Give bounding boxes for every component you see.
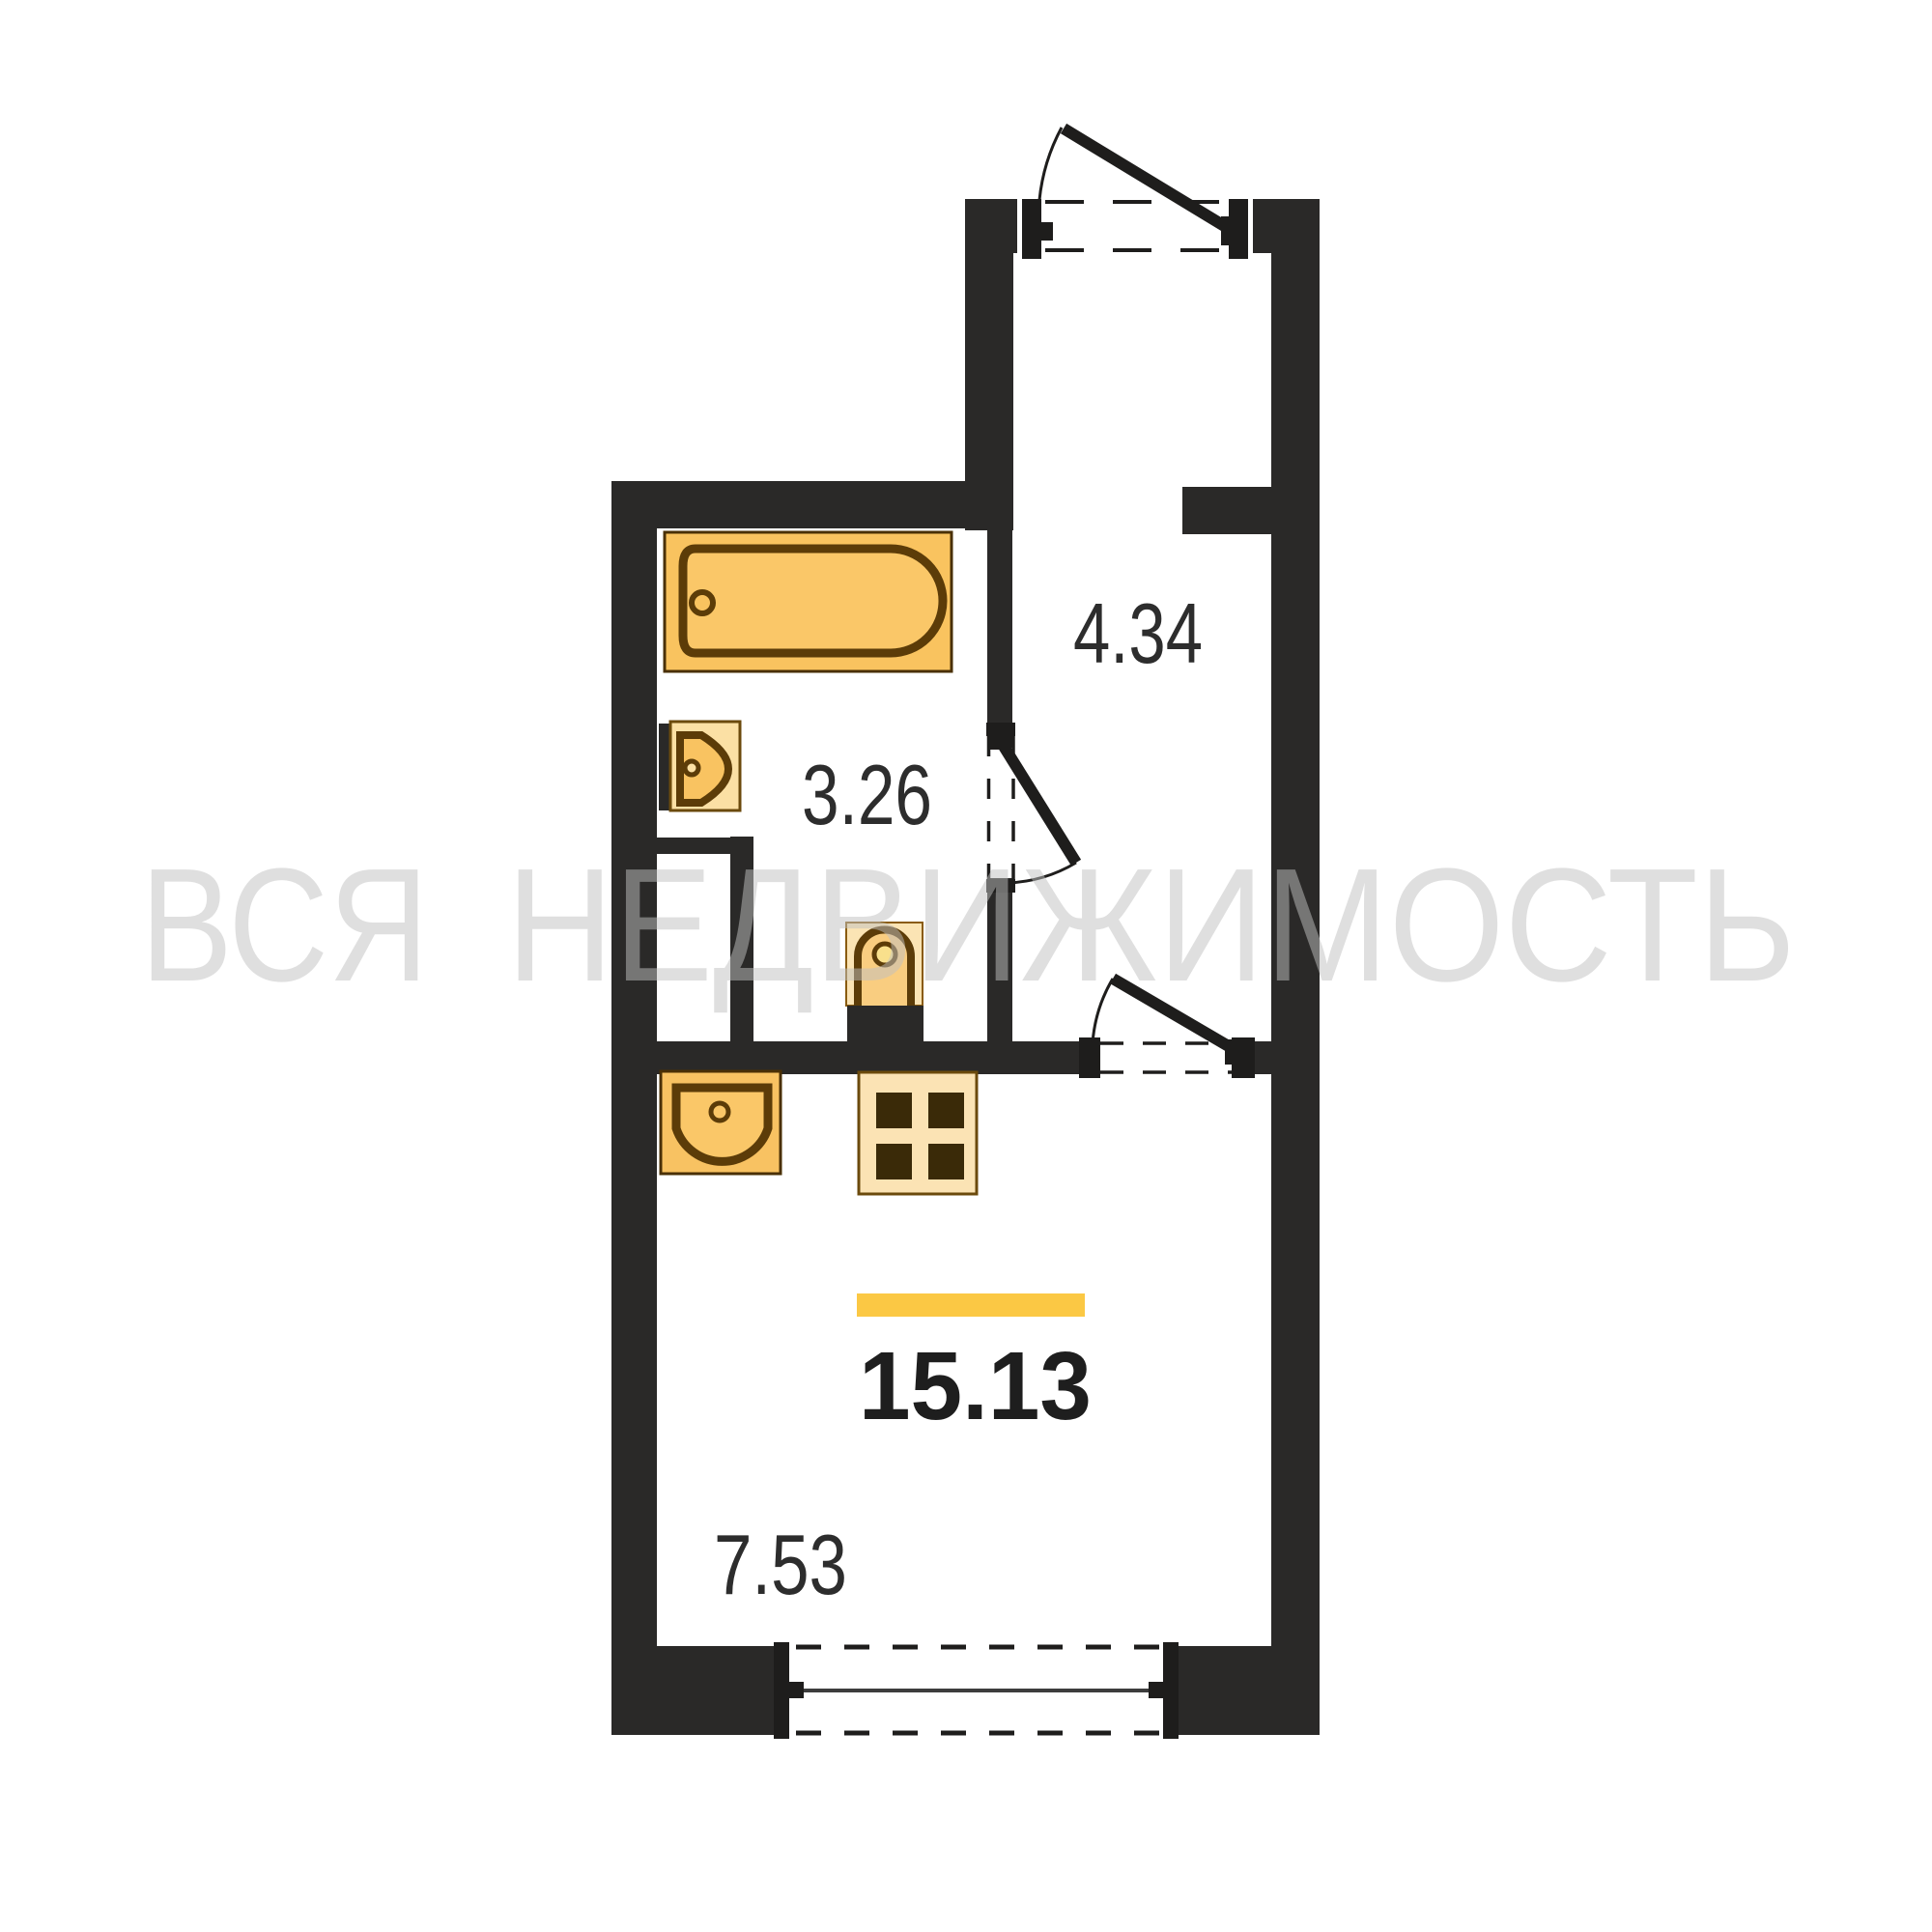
svg-text:15.13: 15.13: [859, 1332, 1092, 1440]
svg-text:4.34: 4.34: [1073, 585, 1203, 681]
svg-text:НЕДВИЖИМОСТЬ: НЕДВИЖИМОСТЬ: [506, 836, 1796, 1015]
svg-text:7.53: 7.53: [714, 1517, 847, 1612]
svg-text:ВСЯ: ВСЯ: [140, 836, 429, 1015]
svg-text:3.26: 3.26: [802, 747, 932, 842]
